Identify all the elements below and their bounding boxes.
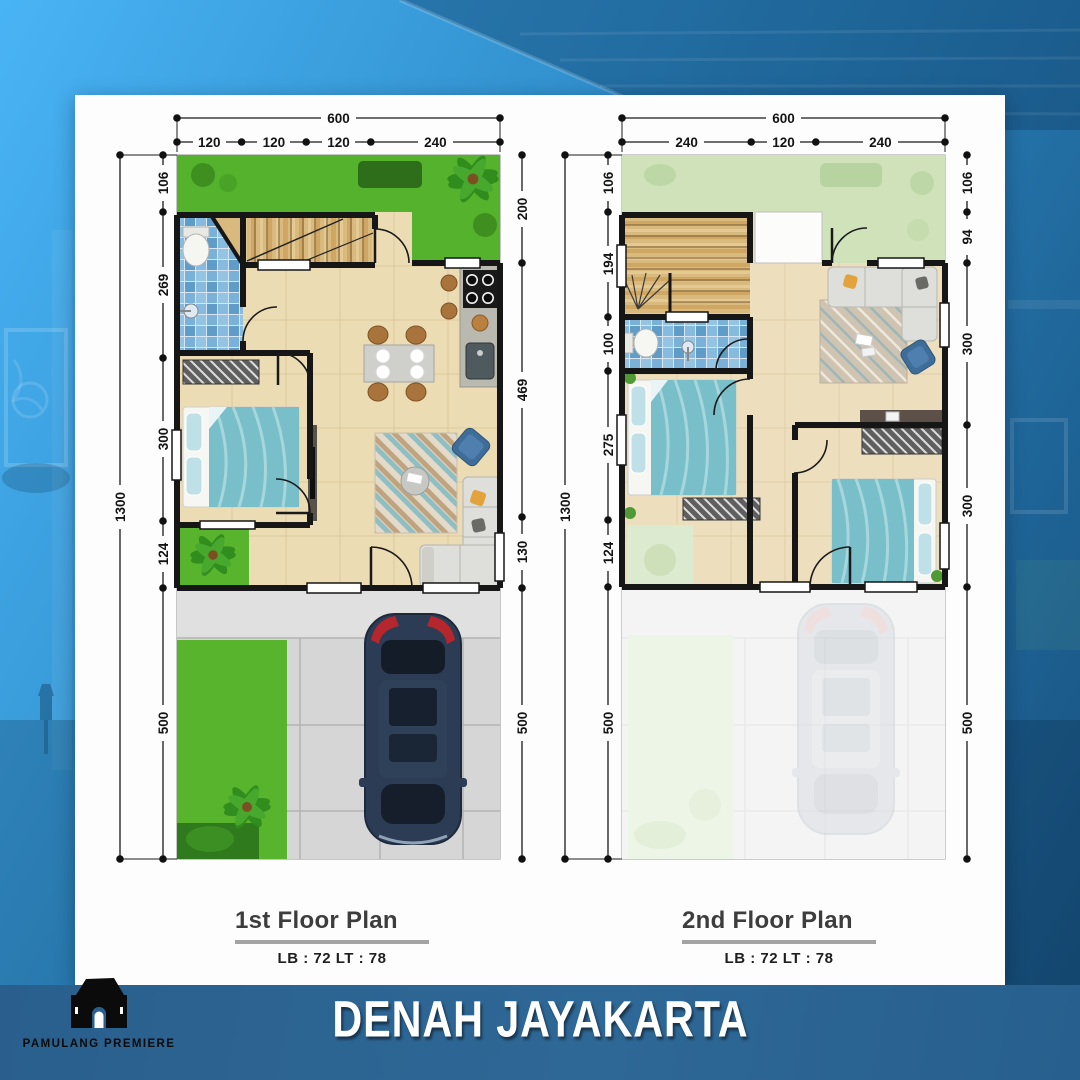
dim-label: 106 — [156, 171, 171, 194]
title-underline — [235, 940, 429, 944]
dim-label: 100 — [601, 333, 616, 356]
dim-label: 194 — [601, 252, 616, 275]
car-icon — [359, 614, 467, 844]
dim-label: 240 — [675, 135, 698, 150]
roof-garden — [622, 155, 945, 212]
family-room — [820, 267, 937, 383]
dim-label: 500 — [960, 712, 975, 735]
second-floor-caption: 2nd Floor Plan LB : 72 LT : 78 — [682, 907, 876, 967]
dim-label: 600 — [327, 111, 350, 126]
wardrobe — [862, 428, 942, 454]
void — [755, 212, 822, 263]
dim-label: 300 — [156, 428, 171, 451]
dim-label: 120 — [772, 135, 795, 150]
brand-name: PAMULANG PREMIERE — [14, 1038, 184, 1050]
dim-label: 120 — [198, 135, 221, 150]
bed — [183, 407, 299, 507]
dim-label: 240 — [424, 135, 447, 150]
house-logo-icon — [62, 975, 136, 1031]
dim-label: 269 — [156, 274, 171, 297]
dim-label: 500 — [601, 712, 616, 735]
dim-label: 120 — [263, 135, 286, 150]
dim-label: 1300 — [113, 492, 128, 522]
dim-label: 106 — [601, 171, 616, 194]
coffee-table — [401, 467, 429, 495]
balcony-shape — [2, 230, 72, 770]
dim-label: 124 — [601, 541, 616, 564]
dim-label: 106 — [960, 171, 975, 194]
brand-logo: PAMULANG PREMIERE — [14, 975, 184, 1050]
bed — [628, 380, 736, 495]
ghost-driveway — [622, 588, 945, 859]
toilet-icon — [634, 329, 658, 357]
dim-label: 600 — [772, 111, 795, 126]
plant-icon — [931, 570, 943, 582]
dim-label: 1300 — [558, 492, 573, 522]
sink-icon — [466, 343, 494, 379]
window-shape — [1008, 300, 1080, 650]
first-floor-caption: 1st Floor Plan LB : 72 LT : 78 — [235, 907, 429, 967]
plant-icon — [624, 507, 636, 519]
poster: 600 120 120 120 240 1300 106 269 300 — [0, 0, 1080, 1080]
dim-label: 124 — [156, 542, 171, 565]
wardrobe — [183, 360, 259, 384]
title-underline — [682, 940, 876, 944]
bathroom — [177, 215, 243, 355]
floorplan-card: 600 120 120 120 240 1300 106 269 300 — [75, 95, 1005, 985]
dim-label: 120 — [327, 135, 350, 150]
desk — [860, 410, 942, 423]
stairs — [243, 215, 375, 265]
dim-label: 94 — [960, 229, 975, 245]
plan-title: 1st Floor Plan — [235, 907, 429, 935]
dim-label: 300 — [960, 333, 975, 356]
toilet-icon — [183, 234, 209, 266]
plan-area-label: LB : 72 LT : 78 — [682, 950, 876, 967]
bed — [832, 479, 936, 583]
stairs — [622, 215, 750, 317]
dim-label: 300 — [960, 495, 975, 518]
plan-area-label: LB : 72 LT : 78 — [235, 950, 429, 967]
dim-label: 240 — [869, 135, 892, 150]
plan-title: 2nd Floor Plan — [682, 907, 876, 935]
dim-label: 275 — [601, 433, 616, 456]
first-floor-plan: 600 120 120 120 240 1300 106 269 300 — [75, 95, 545, 975]
bathroom — [622, 320, 750, 371]
second-floor-plan: 600 240 120 240 1300 106 194 100 275 — [520, 95, 990, 975]
dim-label: 500 — [156, 712, 171, 735]
